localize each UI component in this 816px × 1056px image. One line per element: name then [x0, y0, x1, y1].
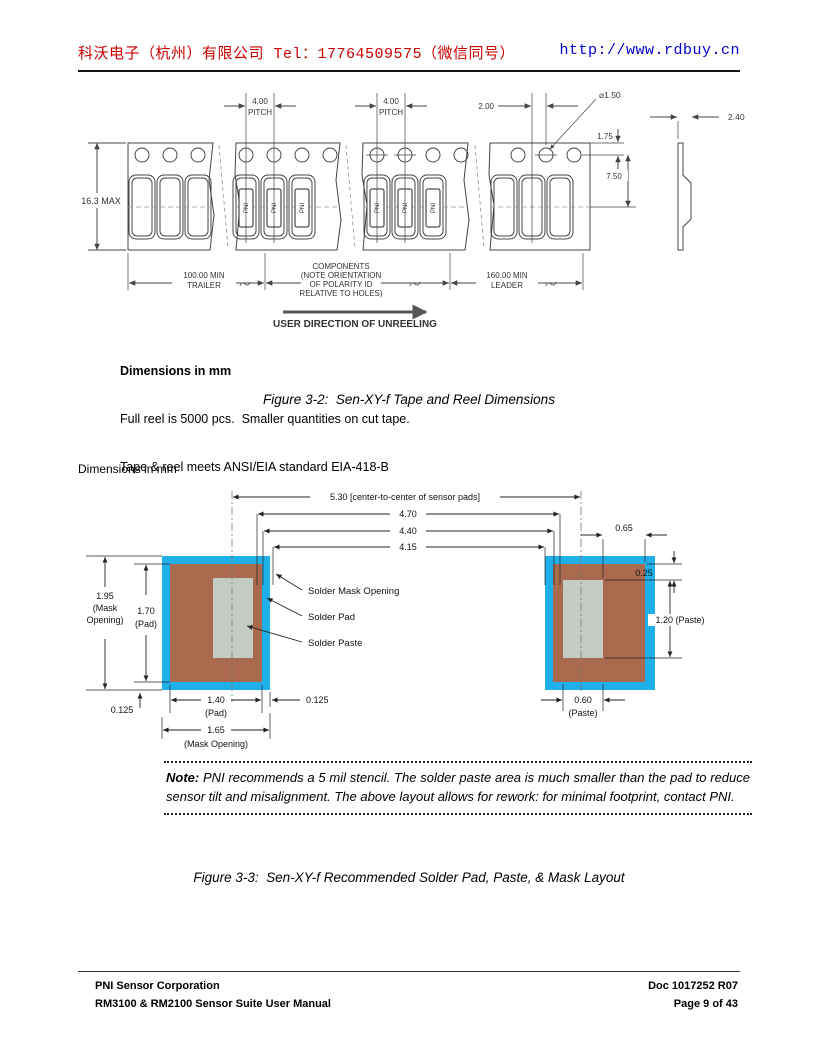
- tape-segment-3: PNI PNI PNI: [362, 143, 469, 250]
- dim-0-60-label: 0.60: [574, 695, 592, 705]
- leader-label: LEADER: [491, 281, 523, 290]
- trailer-label: TRAILER: [187, 281, 221, 290]
- header-company-text: 科沃电子（杭州）有限公司 Tel：17764509575（微信同号）: [78, 42, 515, 63]
- trailer-label: 100.00 MIN: [183, 271, 225, 280]
- note-box: Note: PNI recommends a 5 mil stencil. Th…: [164, 761, 752, 815]
- components-note: COMPONENTS: [312, 262, 369, 271]
- dim-4-70: 4.70: [258, 507, 559, 519]
- dim-pitch-label: PITCH: [379, 108, 403, 117]
- note-label: Note:: [166, 770, 199, 785]
- dim-1-65-label: (Mask Opening): [184, 739, 248, 749]
- dim-1-95-label: 1.95: [96, 591, 114, 601]
- reel-notes-line1: Full reel is 5000 pcs. Smaller quantitie…: [120, 411, 410, 427]
- dim-0-125-right: 0.125: [270, 692, 329, 707]
- dim-16-3-max: 16.3 MAX: [78, 143, 126, 250]
- dim-7-50-label: 7.50: [606, 172, 622, 181]
- dim-4-15: 4.15: [274, 540, 544, 552]
- footer-rule: [78, 971, 740, 972]
- footer-left: PNI Sensor Corporation RM3100 & RM2100 S…: [95, 977, 331, 1013]
- footer-manual-title: RM3100 & RM2100 Sensor Suite User Manual: [95, 995, 331, 1013]
- footer-right: Doc 1017252 R07 Page 9 of 43: [648, 977, 738, 1013]
- unreeling-label: USER DIRECTION OF UNREELING: [273, 319, 437, 330]
- dim-16-3-label: 16.3 MAX: [81, 196, 121, 206]
- dim-1-75-label: 1.75: [597, 132, 613, 141]
- leader-label: 160.00 MIN: [486, 271, 528, 280]
- dim-5-30: 5.30 [center-to-center of sensor pads]: [233, 490, 580, 502]
- dim-1-95-label: Opening): [86, 615, 123, 625]
- dim-hole-offset: 2.00: [478, 93, 578, 243]
- component-marking: PNI: [244, 203, 250, 213]
- dim-tape-sections: 100.00 MIN TRAILER COMPONENTS (NOTE ORIE…: [128, 253, 583, 299]
- components-note: RELATIVE TO HOLES): [299, 289, 382, 298]
- component-marking: PNI: [272, 203, 278, 213]
- dim-1-95-label: (Mask: [93, 603, 118, 613]
- dim-hole-to-edge: 1.75: [582, 129, 624, 169]
- reel-notes-title: Dimensions in mm: [120, 363, 410, 379]
- dim-pitch-value: 4.00: [252, 97, 268, 106]
- dim-2-00-label: 2.00: [478, 102, 494, 111]
- tape-segment-4: [489, 143, 590, 250]
- solder-mask-label: Solder Mask Opening: [308, 586, 399, 597]
- footer-doc-number: Doc 1017252 R07: [648, 977, 738, 995]
- dim-pitch-label: PITCH: [248, 108, 272, 117]
- dim-4-15-label: 4.15: [399, 542, 417, 552]
- dim-0-25-label: 0.25: [635, 568, 653, 578]
- dim-dia-label: ⌀1.50: [599, 90, 621, 100]
- dim-0-60-label: (Paste): [568, 708, 597, 718]
- dim-1-65: 1.65 (Mask Opening): [162, 713, 270, 749]
- figure-3-2-caption: Figure 3-2: Sen-XY-f Tape and Reel Dimen…: [78, 392, 740, 407]
- unreeling-direction: USER DIRECTION OF UNREELING: [273, 312, 437, 330]
- tape-reel-drawing: 16.3 MAX: [78, 85, 758, 335]
- dim-pitch-value: 4.00: [383, 97, 399, 106]
- dim-hole-to-center: 7.50: [590, 155, 636, 207]
- dim-1-70-label: 1.70: [137, 606, 155, 616]
- component-marking: PNI: [403, 203, 409, 213]
- left-solder-paste: [213, 578, 253, 658]
- dim-0-125-right-label: 0.125: [306, 695, 329, 705]
- component-marking: PNI: [300, 203, 306, 213]
- dim-1-65-label: 1.65: [207, 725, 225, 735]
- dim-1-40-label: 1.40: [207, 695, 225, 705]
- solder-pad-label: Solder Pad: [308, 612, 355, 623]
- dim-2-40-label: 2.40: [728, 112, 745, 122]
- components-note: (NOTE ORIENTATION: [301, 271, 382, 280]
- dim-1-20-label: 1.20 (Paste): [655, 615, 704, 625]
- tape-segment-2: PNI PNI PNI: [233, 143, 341, 250]
- dim-0-65-label: 0.65: [615, 523, 633, 533]
- dim-4-70-label: 4.70: [399, 509, 417, 519]
- document-page: 科沃电子（杭州）有限公司 Tel：17764509575（微信同号） http:…: [0, 0, 816, 1056]
- component-marking: PNI: [431, 203, 437, 213]
- header-rule: [78, 70, 740, 72]
- figure-3-3-caption: Figure 3-3: Sen-XY-f Recommended Solder …: [78, 870, 740, 885]
- dim-1-70-label: (Pad): [135, 619, 157, 629]
- dim-4-40: 4.40: [264, 524, 553, 536]
- pad-units-label: Dimensions in mm: [78, 462, 177, 476]
- header-website-url: http://www.rdbuy.cn: [559, 42, 740, 63]
- note-body: PNI recommends a 5 mil stencil. The sold…: [166, 770, 750, 804]
- solder-paste-label: Solder Paste: [308, 638, 362, 649]
- components-note: OF POLARITY ID: [310, 280, 373, 289]
- component-marking: PNI: [375, 203, 381, 213]
- pad-layout-drawing: 5.30 [center-to-center of sensor pads] 4…: [78, 487, 718, 757]
- tape-segment-1: [128, 143, 214, 250]
- page-header: 科沃电子（杭州）有限公司 Tel：17764509575（微信同号） http:…: [78, 42, 740, 63]
- footer-page-number: Page 9 of 43: [648, 995, 738, 1013]
- dim-0-125-left-label: 0.125: [111, 705, 134, 715]
- right-solder-paste: [563, 580, 603, 658]
- reel-notes: Dimensions in mm Full reel is 5000 pcs. …: [120, 331, 410, 507]
- dim-5-30-label: 5.30 [center-to-center of sensor pads]: [330, 492, 480, 502]
- left-pad: [162, 556, 270, 690]
- dim-1-40-label: (Pad): [205, 708, 227, 718]
- tape-side-view: 2.40: [650, 112, 745, 250]
- footer-company: PNI Sensor Corporation: [95, 977, 331, 995]
- dim-0-125-left: 0.125: [111, 693, 140, 715]
- dim-4-40-label: 4.40: [399, 526, 417, 536]
